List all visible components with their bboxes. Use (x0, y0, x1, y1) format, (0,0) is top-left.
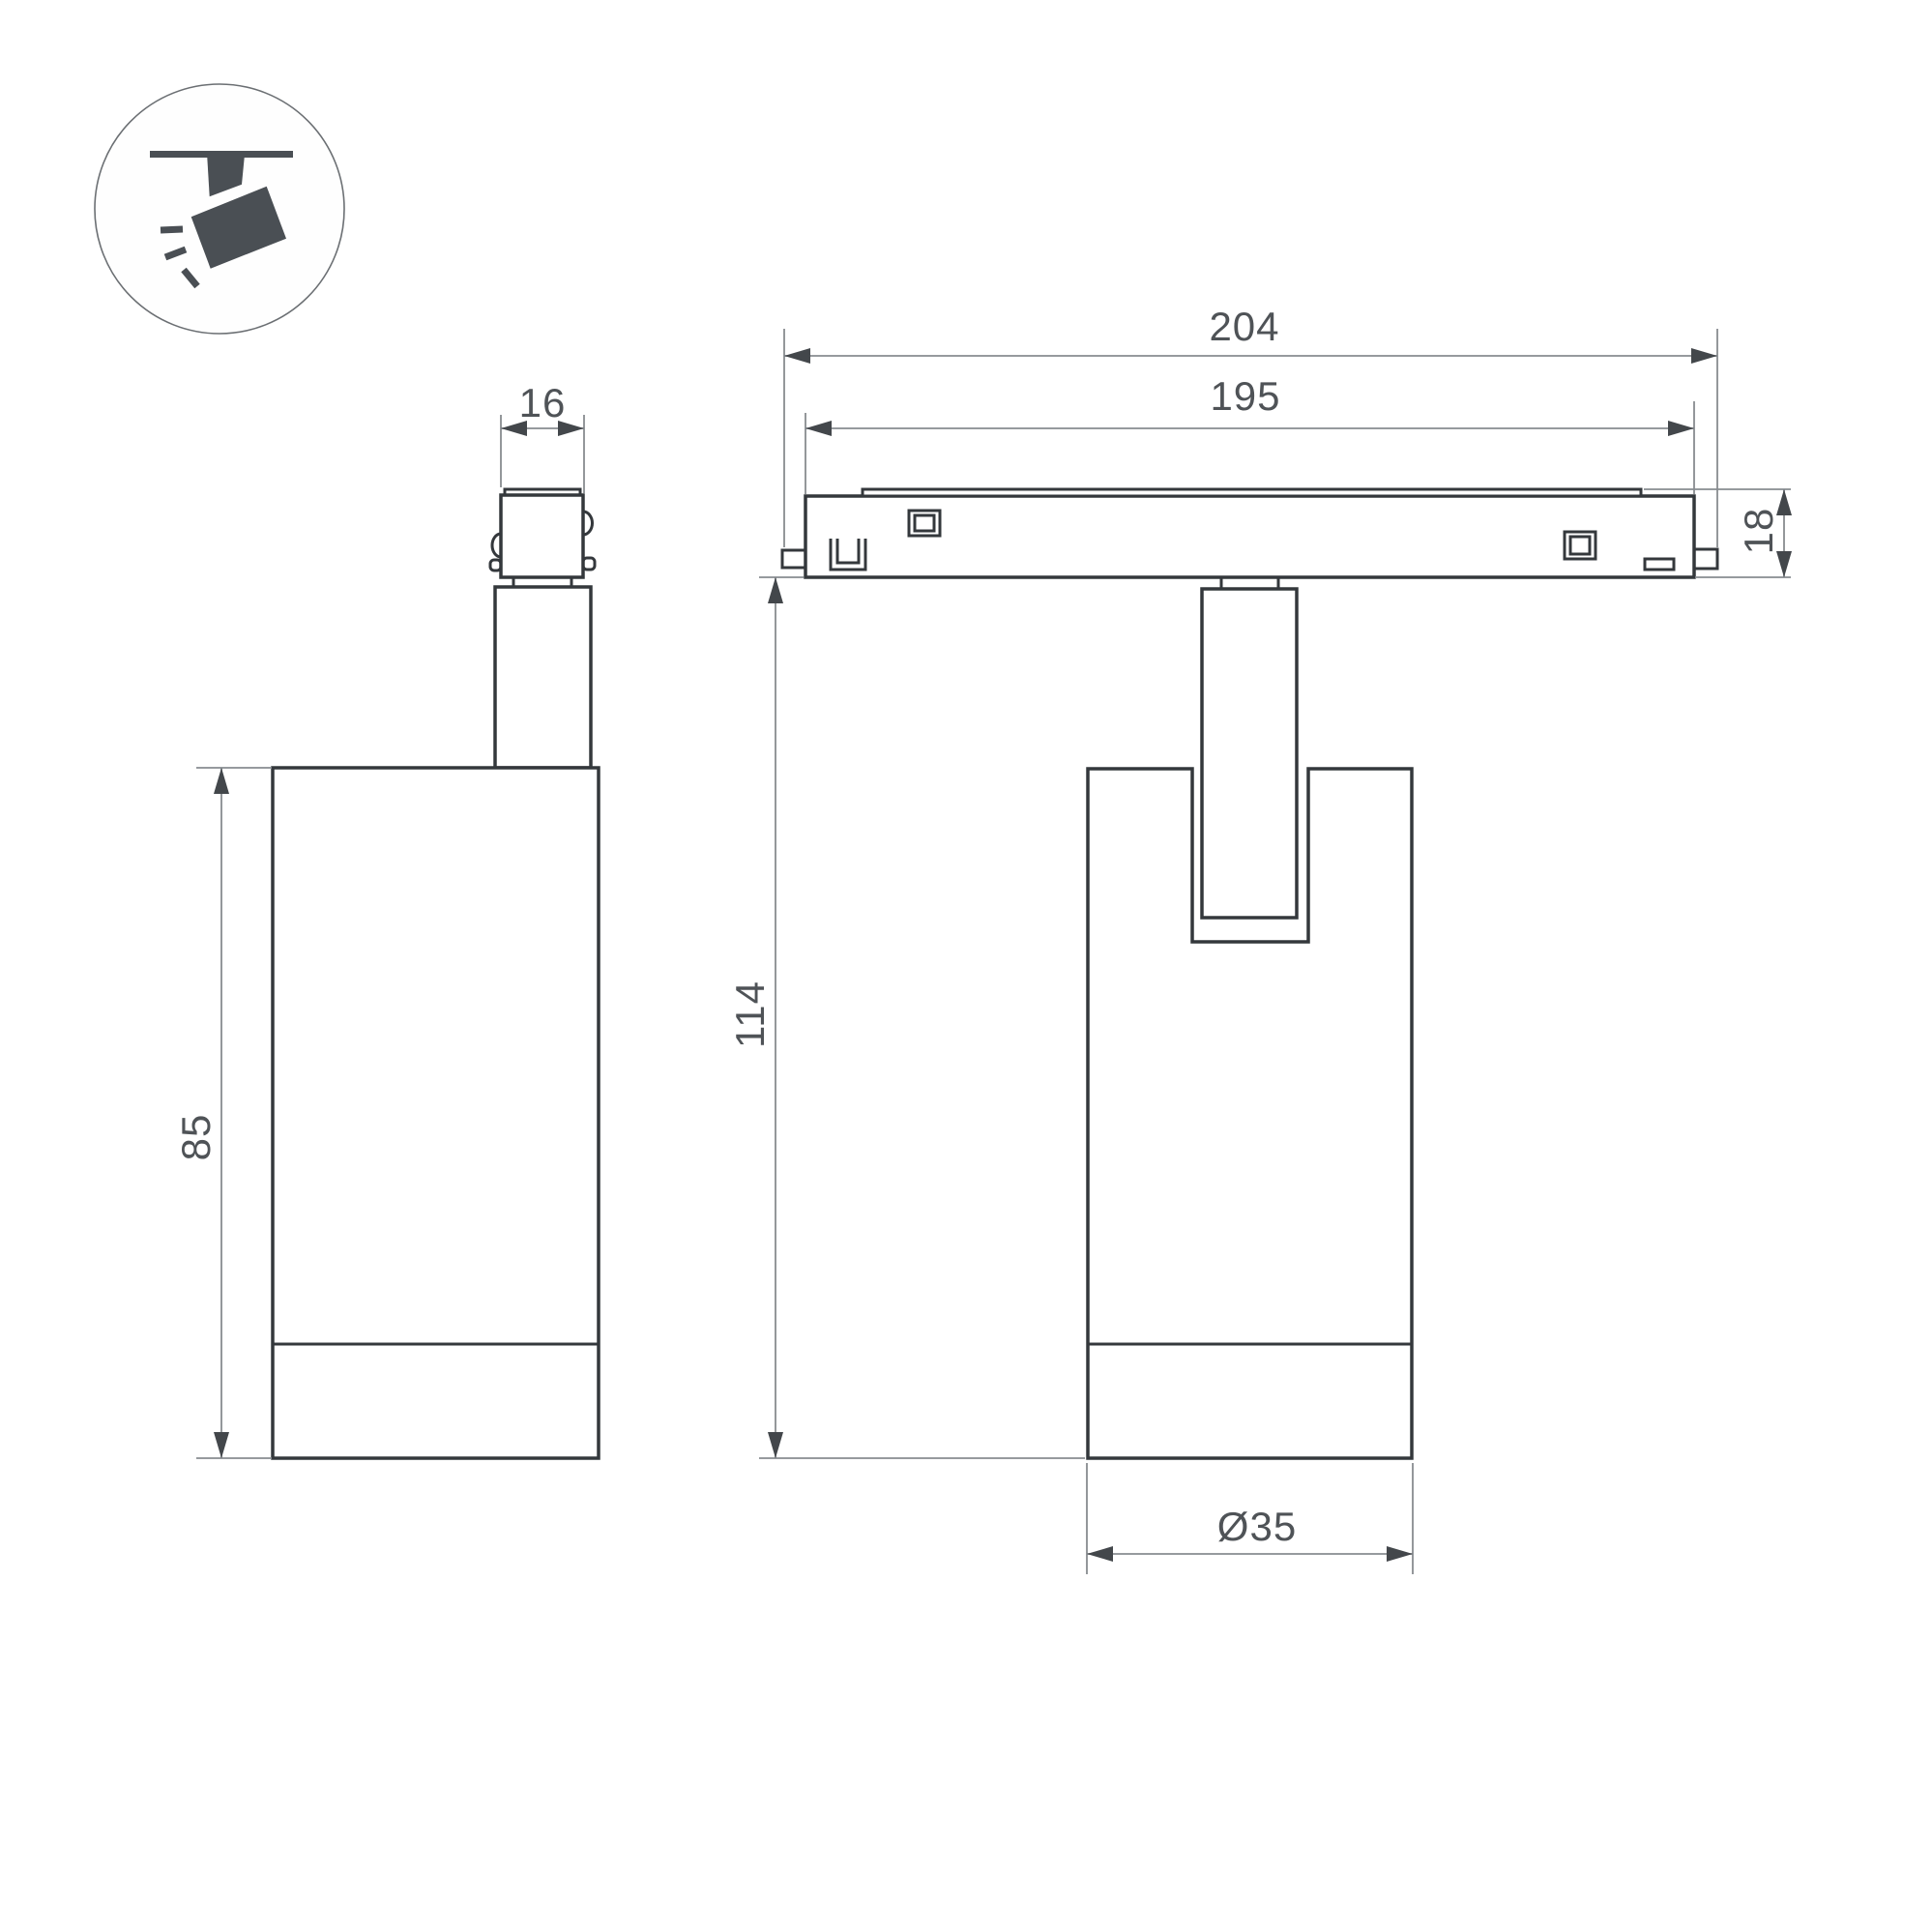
dimension-body-height: 85 (173, 768, 272, 1458)
side-view-stem (495, 587, 591, 768)
dimension-body-diameter: Ø35 (1087, 1463, 1413, 1574)
dimension-overall-height: 114 (727, 577, 1085, 1458)
side-view (273, 489, 599, 1458)
side-view-track-adapter (501, 495, 583, 577)
dimension-label-85: 85 (173, 1114, 219, 1161)
front-view (782, 489, 1717, 1458)
side-view-adapter-lug-right (583, 558, 595, 570)
luminaire-dimension-drawing: 16 204 195 18 114 (0, 0, 1932, 1932)
track-top-strip (863, 489, 1641, 496)
icon-track-bar (150, 151, 293, 158)
dimension-label-16: 16 (519, 380, 567, 425)
track-vent-slot (1645, 559, 1674, 570)
front-view-swivel-neck (1221, 577, 1278, 589)
dimension-track-visible-length: 195 (805, 373, 1694, 494)
side-view-body (273, 768, 599, 1458)
dimension-label-18: 18 (1736, 508, 1781, 555)
front-view-stem (1202, 589, 1297, 918)
dimension-adapter-width: 16 (501, 380, 584, 493)
dimension-label-204: 204 (1209, 304, 1279, 349)
dimension-label-195: 195 (1210, 373, 1280, 419)
dimension-drawing-page: 16 204 195 18 114 (0, 0, 1932, 1932)
track-end-tab-right (1694, 549, 1717, 569)
dimension-label-114: 114 (727, 981, 773, 1048)
icon-light-ray-1 (161, 229, 183, 230)
track-spotlight-icon (95, 84, 344, 334)
dimension-label-d35: Ø35 (1217, 1504, 1297, 1549)
track-end-tab-left (782, 550, 805, 568)
